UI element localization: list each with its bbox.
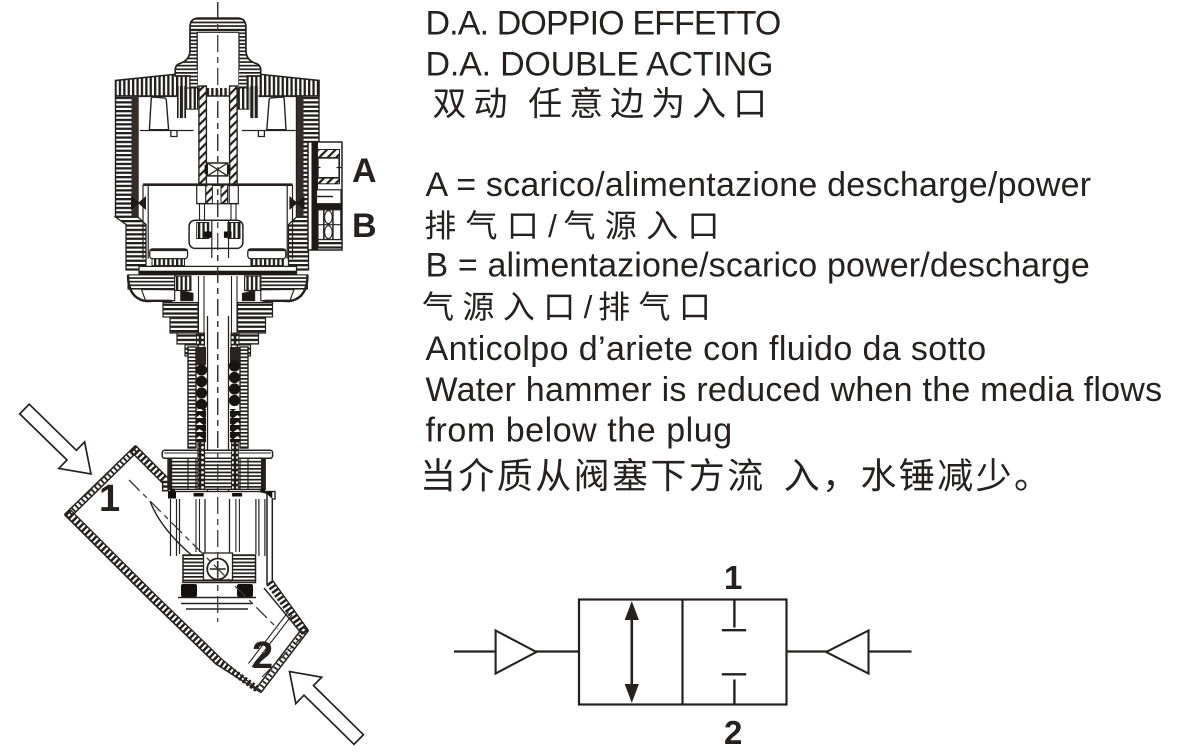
svg-text:2: 2: [252, 635, 273, 677]
svg-text:A = scarico/alimentazione desc: A = scarico/alimentazione descharge/powe…: [426, 166, 1092, 204]
svg-text:B = alimentazione/scarico powe: B = alimentazione/scarico power/descharg…: [426, 247, 1090, 285]
svg-text:/: /: [584, 290, 593, 325]
svg-text:A: A: [352, 152, 377, 190]
svg-text:1: 1: [99, 478, 120, 520]
svg-text:B: B: [352, 207, 377, 245]
svg-text:2: 2: [724, 714, 742, 751]
svg-text:Water hammer is reduced when t: Water hammer is reduced when the media f…: [426, 371, 1163, 409]
svg-text:/: /: [548, 209, 557, 244]
svg-text:from below the plug: from below the plug: [426, 412, 733, 450]
svg-text:D.A. DOUBLE ACTING: D.A. DOUBLE ACTING: [426, 45, 774, 83]
svg-text:1: 1: [724, 559, 742, 596]
svg-text:Anticolpo d’ariete con fluido: Anticolpo d’ariete con fluido da sotto: [426, 330, 987, 368]
svg-text:D.A. DOPPIO EFFETTO: D.A. DOPPIO EFFETTO: [426, 5, 781, 43]
